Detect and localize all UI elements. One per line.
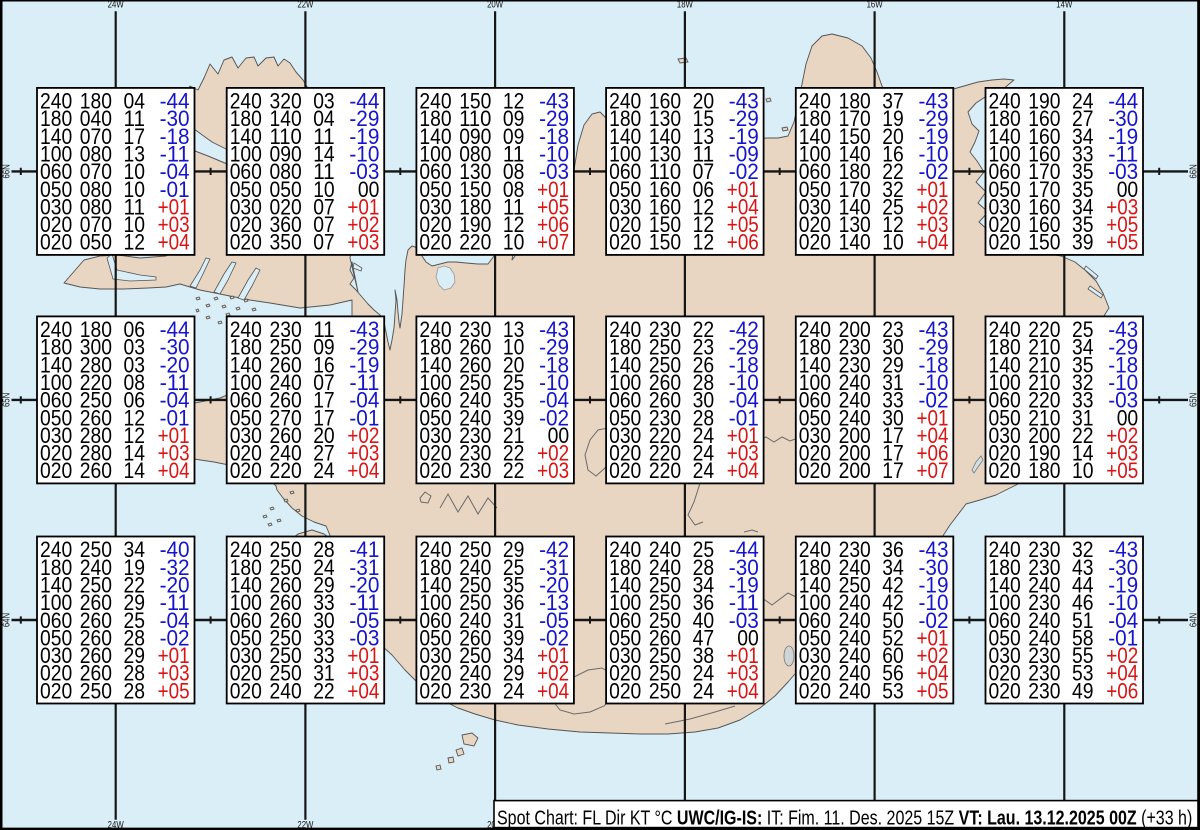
svg-text:24: 24	[503, 678, 525, 703]
svg-text:+04: +04	[727, 678, 759, 703]
svg-text:64N: 64N	[1188, 613, 1199, 627]
svg-text:66N: 66N	[1188, 164, 1199, 178]
svg-text:14: 14	[124, 458, 146, 483]
svg-text:22W: 22W	[297, 819, 313, 830]
svg-text:17: 17	[882, 458, 904, 483]
svg-text:24W: 24W	[108, 819, 124, 830]
svg-text:020: 020	[40, 458, 72, 483]
svg-text:200: 200	[839, 458, 871, 483]
svg-text:+07: +07	[917, 458, 949, 483]
svg-text:39: 39	[1072, 230, 1094, 255]
svg-text:12: 12	[693, 230, 715, 255]
svg-text:+04: +04	[158, 458, 190, 483]
svg-text:10: 10	[882, 230, 904, 255]
svg-text:020: 020	[609, 458, 641, 483]
svg-text:240: 240	[270, 678, 302, 703]
svg-text:+03: +03	[537, 458, 569, 483]
svg-text:24: 24	[313, 458, 335, 483]
svg-text:020: 020	[989, 458, 1021, 483]
svg-text:240: 240	[839, 678, 871, 703]
svg-text:49: 49	[1072, 678, 1094, 703]
svg-text:65N: 65N	[1, 393, 12, 407]
svg-text:+04: +04	[347, 458, 379, 483]
svg-text:+03: +03	[347, 230, 379, 255]
svg-text:350: 350	[270, 230, 302, 255]
svg-text:+06: +06	[727, 230, 759, 255]
svg-text:020: 020	[609, 230, 641, 255]
svg-text:64N: 64N	[1, 613, 12, 627]
svg-text:20W: 20W	[487, 0, 503, 10]
svg-text:020: 020	[419, 458, 451, 483]
svg-text:020: 020	[40, 230, 72, 255]
svg-text:28: 28	[124, 678, 146, 703]
svg-text:260: 260	[80, 458, 112, 483]
svg-text:+05: +05	[917, 678, 949, 703]
svg-text:230: 230	[459, 458, 491, 483]
svg-text:150: 150	[1028, 230, 1060, 255]
svg-text:050: 050	[80, 230, 112, 255]
svg-text:250: 250	[649, 678, 681, 703]
svg-text:150: 150	[649, 230, 681, 255]
svg-text:Spot Chart: FL Dir KT °C UWC/I: Spot Chart: FL Dir KT °C UWC/IG-IS: IT: …	[497, 805, 1192, 828]
svg-text:53: 53	[882, 678, 904, 703]
svg-text:140: 140	[839, 230, 871, 255]
svg-text:020: 020	[609, 678, 641, 703]
svg-text:+07: +07	[537, 230, 569, 255]
svg-text:230: 230	[1028, 678, 1060, 703]
svg-text:+05: +05	[158, 678, 190, 703]
svg-text:+05: +05	[1106, 458, 1138, 483]
svg-text:+05: +05	[1106, 230, 1138, 255]
svg-text:10: 10	[1072, 458, 1094, 483]
svg-text:020: 020	[40, 678, 72, 703]
svg-text:020: 020	[799, 678, 831, 703]
svg-text:07: 07	[313, 230, 335, 255]
svg-text:+04: +04	[917, 230, 949, 255]
svg-text:14W: 14W	[1056, 0, 1072, 10]
svg-text:18W: 18W	[677, 0, 693, 10]
svg-text:+04: +04	[347, 678, 379, 703]
svg-text:65N: 65N	[1188, 393, 1199, 407]
svg-text:020: 020	[799, 458, 831, 483]
svg-text:16W: 16W	[867, 0, 883, 10]
svg-text:12: 12	[124, 230, 146, 255]
svg-text:22W: 22W	[297, 0, 313, 10]
svg-text:220: 220	[459, 230, 491, 255]
svg-text:22: 22	[503, 458, 525, 483]
svg-text:020: 020	[799, 230, 831, 255]
svg-text:020: 020	[230, 678, 262, 703]
svg-text:020: 020	[230, 458, 262, 483]
svg-text:24W: 24W	[108, 0, 124, 10]
svg-text:22: 22	[313, 678, 335, 703]
svg-text:020: 020	[230, 230, 262, 255]
svg-text:24: 24	[693, 678, 715, 703]
svg-text:180: 180	[1028, 458, 1060, 483]
svg-text:020: 020	[419, 678, 451, 703]
svg-text:250: 250	[80, 678, 112, 703]
svg-text:020: 020	[989, 230, 1021, 255]
svg-text:230: 230	[459, 678, 491, 703]
svg-text:220: 220	[270, 458, 302, 483]
svg-text:66N: 66N	[1, 164, 12, 178]
svg-text:+04: +04	[727, 458, 759, 483]
svg-text:24: 24	[693, 458, 715, 483]
svg-text:+06: +06	[1106, 678, 1138, 703]
svg-text:10: 10	[503, 230, 525, 255]
svg-text:+04: +04	[537, 678, 569, 703]
svg-text:020: 020	[419, 230, 451, 255]
svg-text:020: 020	[989, 678, 1021, 703]
svg-text:+04: +04	[158, 230, 190, 255]
svg-text:220: 220	[649, 458, 681, 483]
